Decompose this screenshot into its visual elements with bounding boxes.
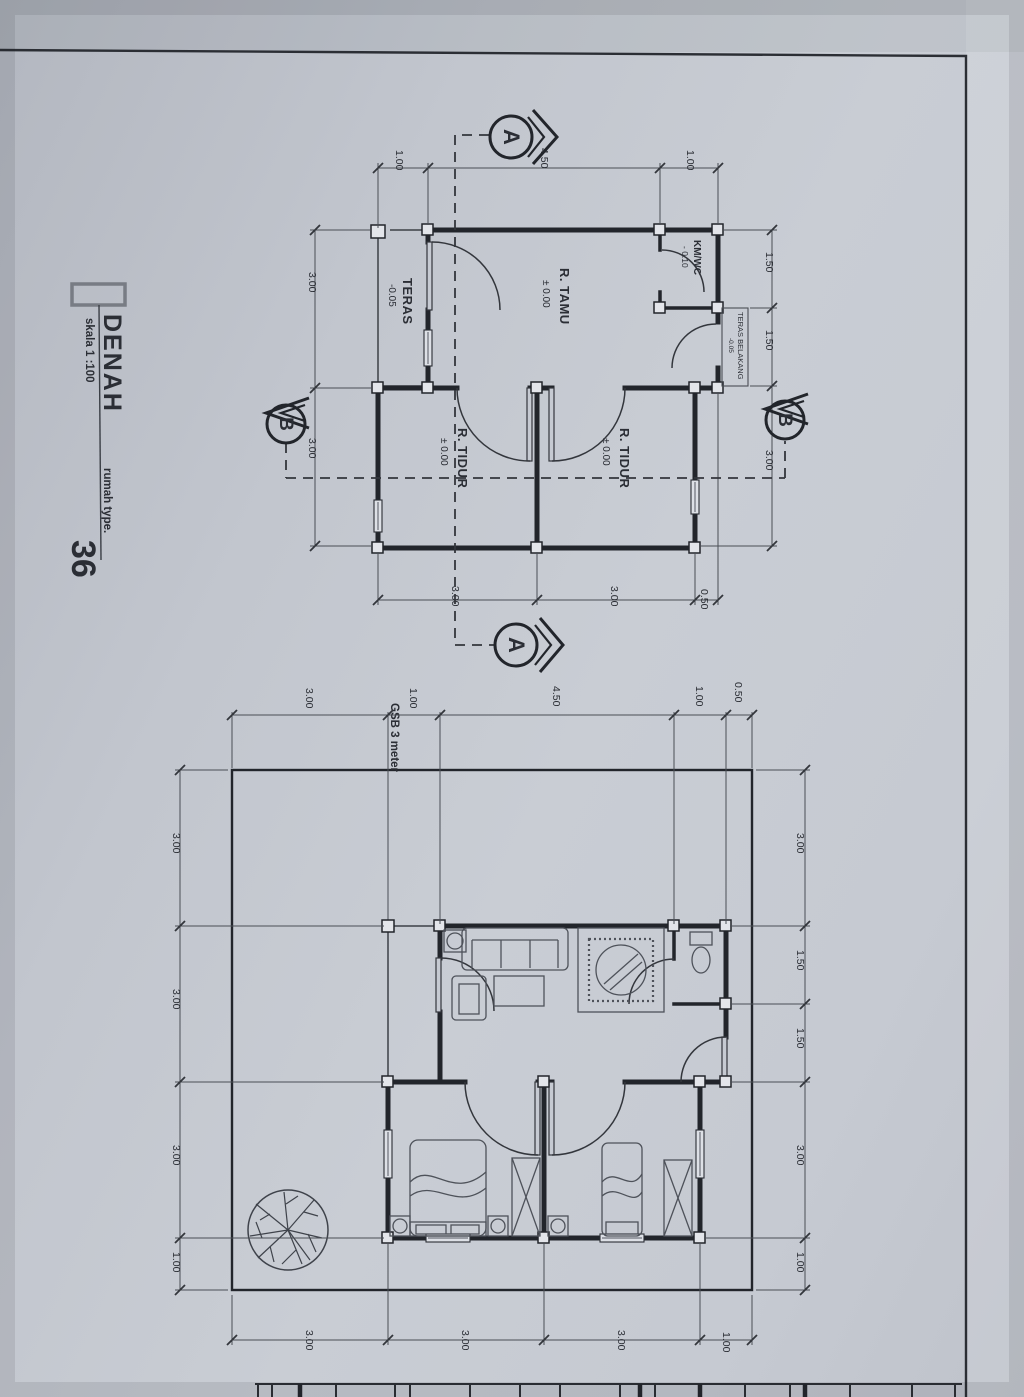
sofa-icon xyxy=(462,928,568,970)
plant-icon xyxy=(447,933,463,949)
room-level-teras: -0.05 xyxy=(386,284,397,307)
room-level-r-tidur-1: ± 0.00 xyxy=(438,438,449,466)
teras-belakang-box: TERAS BELAKANG -0.05 xyxy=(722,308,748,386)
double-bed-icon xyxy=(410,1140,486,1236)
door-arc xyxy=(552,388,625,461)
living-room-furniture xyxy=(444,928,712,1020)
legend-swatch xyxy=(72,284,125,305)
sheet-type-label: rumah type. xyxy=(101,468,113,533)
section-letter: A xyxy=(504,637,529,653)
tree-icon xyxy=(248,1190,328,1270)
door-leaf xyxy=(549,388,554,461)
dim-label: 1.00 xyxy=(794,1252,806,1273)
dim-label: 4.50 xyxy=(550,686,562,707)
door-leaf xyxy=(527,388,532,461)
dim-label: 3.00 xyxy=(794,1145,806,1166)
wardrobe-icon xyxy=(664,1160,692,1236)
dim-label: 1.50 xyxy=(794,1028,806,1049)
door-arc xyxy=(552,1082,625,1155)
blueprint-sheet: DENAH skala 1 :100 rumah type. 36 xyxy=(0,0,1024,1397)
room-label-teras: TERAS xyxy=(400,278,415,325)
dim-label: 1.50 xyxy=(794,950,806,971)
floor-plan: TERAS BELAKANG -0.05 TERAS -0.05 R. TAMU… xyxy=(266,110,808,672)
door-arc xyxy=(629,959,674,1004)
dim-label: 3.00 xyxy=(170,989,182,1010)
dim-label: 1.50 xyxy=(763,330,775,351)
section-letter: B xyxy=(275,417,296,431)
dim-label: 3.00 xyxy=(459,1330,471,1351)
dim-label: 0.50 xyxy=(698,589,710,610)
sheet-type-number: 36 xyxy=(64,540,102,578)
dim-label: 1.00 xyxy=(170,1252,182,1273)
sheet-title: DENAH xyxy=(98,314,126,413)
section-letter: A xyxy=(499,129,524,145)
room-label-km-wc: KM/WC xyxy=(691,240,702,275)
room-level-r-tamu: ± 0.00 xyxy=(540,280,551,308)
dim-label: 3.00 xyxy=(306,272,318,293)
dim-label: 3.00 xyxy=(170,833,182,854)
wardrobe-icon xyxy=(512,1158,540,1236)
site-plan-dimensions: 3.00 1.00 4.50 1.00 0.50 3.00 3.00 3.00 … xyxy=(170,682,810,1353)
room-label-r-tamu: R. TAMU xyxy=(557,268,572,325)
room-level-teras-belakang: -0.05 xyxy=(727,338,734,353)
door-arc xyxy=(465,1082,538,1155)
dim-label: 3.00 xyxy=(303,1330,315,1351)
dim-label: 3.00 xyxy=(794,833,806,854)
dim-label: 3.00 xyxy=(763,450,775,471)
section-marker-b-right: B xyxy=(765,394,808,439)
section-letter: B xyxy=(774,413,795,427)
dim-label: 3.00 xyxy=(615,1330,627,1351)
room-label-r-tidur-1: R. TIDUR xyxy=(455,428,470,488)
dim-label: 1.50 xyxy=(763,252,775,273)
dim-label: 1.00 xyxy=(407,688,419,709)
dim-label: 3.00 xyxy=(608,586,620,607)
dim-label: 3.00 xyxy=(306,438,318,459)
bedroom-furniture xyxy=(390,1140,692,1236)
door-arc xyxy=(432,242,500,310)
coffee-table-icon xyxy=(494,976,544,1006)
dim-label: 1.00 xyxy=(693,686,705,707)
door-leaf xyxy=(436,958,441,1012)
single-bed-icon xyxy=(602,1143,642,1236)
armchair-icon xyxy=(452,976,486,1020)
door-leaf xyxy=(549,1082,554,1155)
room-label-r-tidur-2: R. TIDUR xyxy=(617,428,632,488)
dim-label: 1.00 xyxy=(393,150,405,171)
dim-label: 1.00 xyxy=(684,150,696,171)
ornament-square xyxy=(578,928,664,1012)
section-marker-b-left: B xyxy=(266,398,309,443)
door-leaf xyxy=(427,242,432,310)
section-marker-a-bottom: A xyxy=(495,618,563,672)
room-label-teras-belakang: TERAS BELAKANG xyxy=(736,312,745,380)
room-labels: TERAS -0.05 R. TAMU ± 0.00 KM/WC - 0.10 … xyxy=(386,240,702,488)
title-block: DENAH skala 1 :100 rumah type. 36 xyxy=(64,284,126,578)
sheet-scale: skala 1 :100 xyxy=(83,318,95,383)
toilet-icon xyxy=(690,932,712,973)
dim-label: 1.00 xyxy=(720,1332,732,1353)
dim-label: 3.00 xyxy=(170,1145,182,1166)
room-level-r-tidur-2: ± 0.00 xyxy=(600,438,611,466)
door-arc xyxy=(672,324,716,368)
site-plan: GSB 3 meter xyxy=(170,682,810,1353)
dim-label: 0.50 xyxy=(732,682,744,703)
sheet-border xyxy=(0,50,966,1397)
dim-label: 3.00 xyxy=(303,688,315,709)
door-leaf xyxy=(535,1082,540,1155)
room-level-km-wc: - 0.10 xyxy=(680,246,690,268)
